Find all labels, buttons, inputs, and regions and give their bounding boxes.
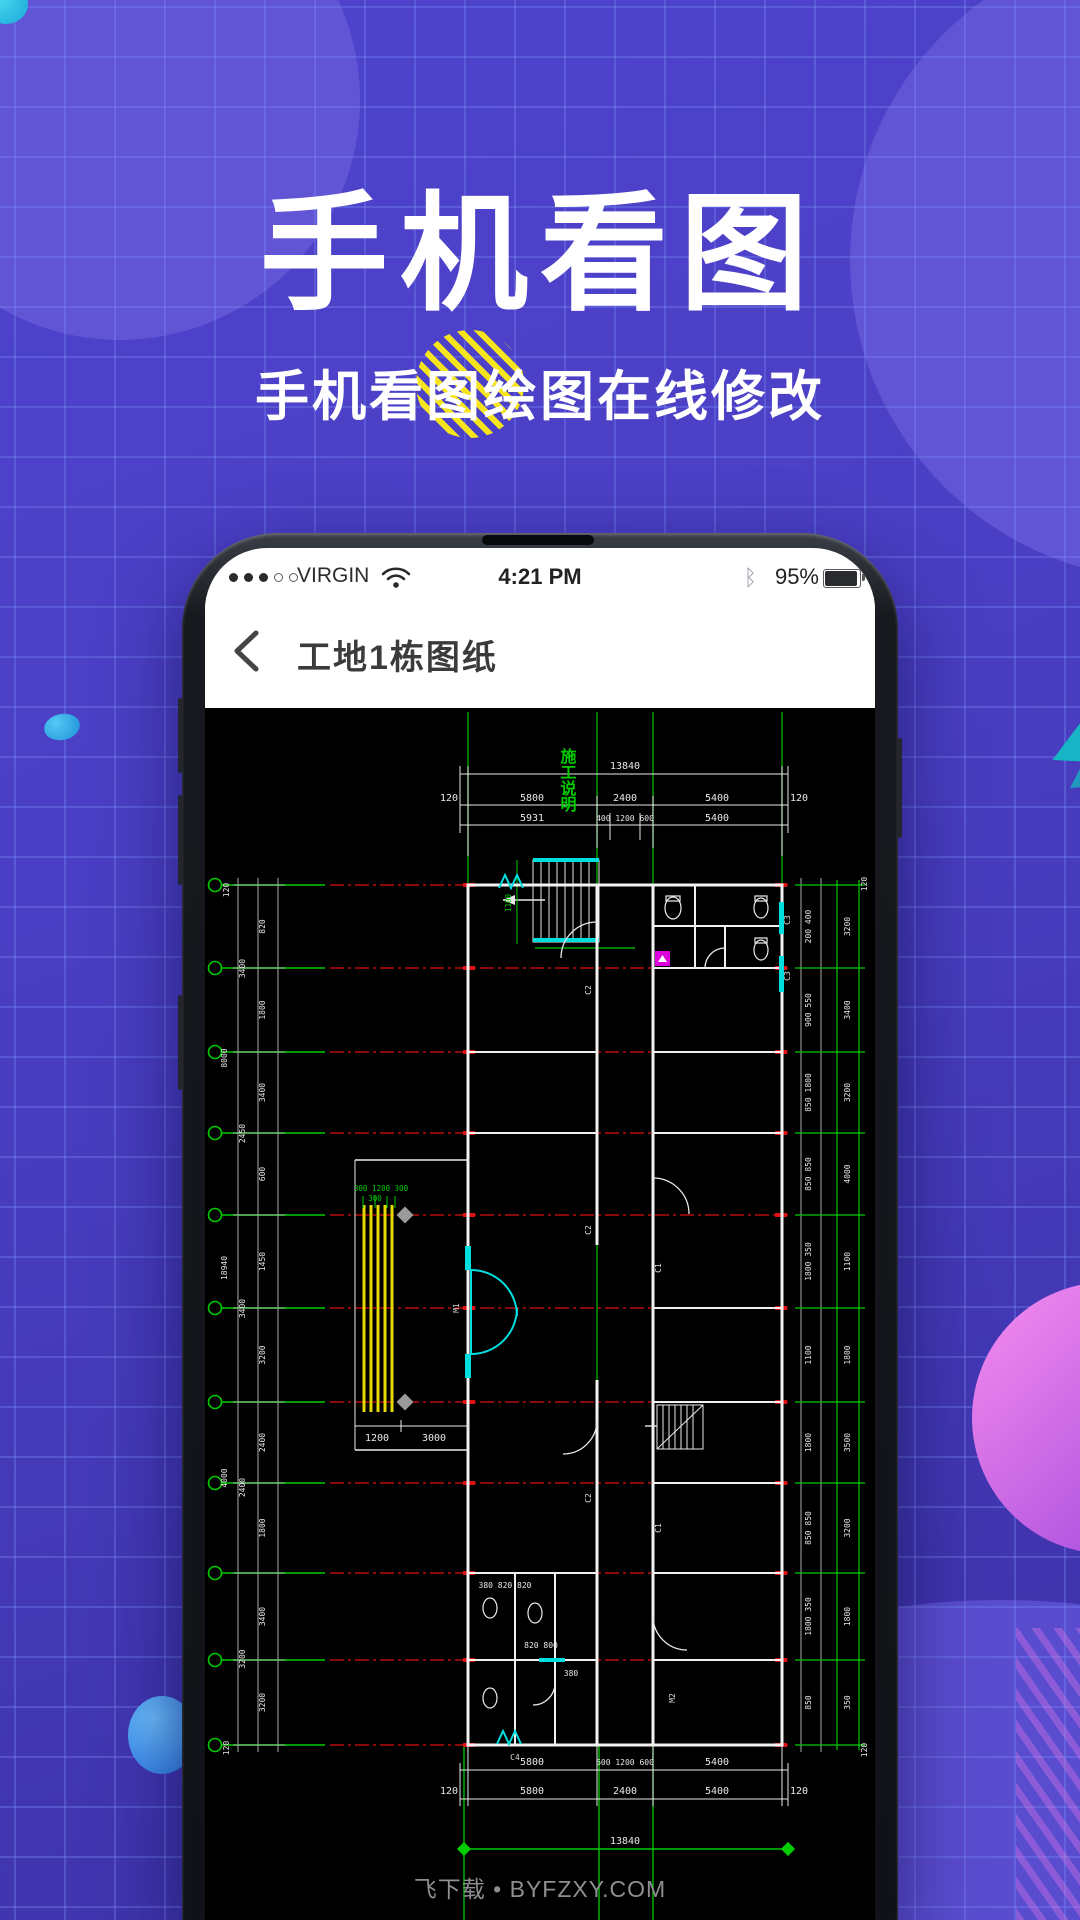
decor-triangle-teal xyxy=(1028,648,1080,798)
window-label: C2 xyxy=(584,985,593,995)
svg-text:3500: 3500 xyxy=(843,1433,852,1452)
dim-label: 120 xyxy=(790,793,808,804)
windows-cyan xyxy=(497,875,784,1744)
cad-green-note: 施工说明 xyxy=(558,747,577,813)
svg-text:4000: 4000 xyxy=(843,1164,852,1183)
dim-label: 380 820 820 xyxy=(479,1581,532,1590)
dim-label: 820 800 xyxy=(524,1641,558,1650)
svg-text:3400: 3400 xyxy=(238,959,247,978)
svg-text:350: 350 xyxy=(843,1695,852,1710)
phone-mockup: VIRGIN 4:21 PM ᛒ 95% 工地1栋图纸 xyxy=(182,533,898,1920)
dim-label: 1200 xyxy=(365,1433,389,1444)
room-partitions xyxy=(468,885,782,1745)
phone-screen: VIRGIN 4:21 PM ᛒ 95% 工地1栋图纸 xyxy=(205,548,875,1920)
window-label: C1 xyxy=(654,1523,663,1533)
door-arcs xyxy=(533,922,725,1705)
window-label: C3 xyxy=(783,971,792,981)
svg-text:1800: 1800 xyxy=(843,1345,852,1364)
svg-text:850 850: 850 850 xyxy=(804,1157,813,1191)
dim-label: 13840 xyxy=(610,761,640,772)
window-label: C2 xyxy=(584,1225,593,1235)
dim-label: 5931 xyxy=(520,813,544,824)
floorplan-drawing: 8201800340060014503200240018003400320034… xyxy=(205,708,875,1920)
dim-label: 5400 xyxy=(705,793,729,804)
svg-text:1800: 1800 xyxy=(258,1518,267,1537)
cad-canvas[interactable]: 8201800340060014503200240018003400320034… xyxy=(205,708,875,1920)
svg-text:3200: 3200 xyxy=(843,1518,852,1537)
door-label: M1 xyxy=(452,1303,461,1313)
window-label: C2 xyxy=(584,1493,593,1503)
dim-label: 5400 xyxy=(705,1757,729,1768)
dim-label: 600 1200 600 xyxy=(596,1758,654,1767)
dim-label: 120 xyxy=(860,1743,869,1758)
dim-label: 120 xyxy=(440,1786,458,1797)
svg-text:3400: 3400 xyxy=(258,1607,267,1626)
door-label: C4 xyxy=(510,1753,520,1762)
dim-label: 120 xyxy=(790,1786,808,1797)
dim-label: 120 xyxy=(222,1741,231,1756)
svg-text:3200: 3200 xyxy=(843,1083,852,1102)
status-bar: VIRGIN 4:21 PM ᛒ 95% xyxy=(205,562,875,596)
window-label: C3 xyxy=(783,915,792,925)
battery-percent-label: 95% xyxy=(775,564,819,590)
svg-text:3200: 3200 xyxy=(258,1693,267,1712)
dim-label: 300 1200 300 xyxy=(354,1184,409,1193)
bluetooth-icon: ᛒ xyxy=(744,565,757,591)
svg-text:1100: 1100 xyxy=(843,1252,852,1271)
hero-subtitle: 手机看图绘图在线修改 xyxy=(0,352,1080,431)
svg-text:1800: 1800 xyxy=(258,1000,267,1019)
svg-text:1800: 1800 xyxy=(843,1607,852,1626)
svg-text:850: 850 xyxy=(804,1695,813,1710)
phone-button-right xyxy=(897,738,902,838)
svg-text:3200: 3200 xyxy=(843,917,852,936)
dim-label: 2400 xyxy=(613,793,637,804)
svg-text:600: 600 xyxy=(258,1167,267,1182)
svg-text:1100: 1100 xyxy=(804,1345,813,1364)
dim-label: 5800 xyxy=(520,1786,544,1797)
window-label: C1 xyxy=(654,1263,663,1273)
dim-label: 5800 xyxy=(520,793,544,804)
svg-text:820: 820 xyxy=(258,919,267,934)
svg-text:4000: 4000 xyxy=(220,1468,229,1487)
dim-label: 380 xyxy=(564,1669,579,1678)
dim-label: 120 xyxy=(860,877,869,892)
svg-text:2400: 2400 xyxy=(258,1433,267,1452)
dim-label: 2400 xyxy=(613,1786,637,1797)
back-button[interactable] xyxy=(229,628,265,674)
svg-text:1800 350: 1800 350 xyxy=(804,1597,813,1636)
phone-button-left xyxy=(178,698,183,773)
svg-text:3200: 3200 xyxy=(258,1345,267,1364)
decor-stripes-bottomright xyxy=(1016,1628,1080,1920)
svg-text:1800 350: 1800 350 xyxy=(804,1242,813,1281)
promo-page: 手机看图 手机看图绘图在线修改 VIRGIN 4:21 PM xyxy=(0,0,1080,1920)
phone-speaker xyxy=(482,535,594,545)
svg-text:1450: 1450 xyxy=(258,1252,267,1271)
dim-label: 400 1200 600 xyxy=(596,814,654,823)
svg-text:2400: 2400 xyxy=(238,1478,247,1497)
svg-text:18940: 18940 xyxy=(220,1256,229,1280)
page-title: 工地1栋图纸 xyxy=(297,630,498,679)
door-label: M2 xyxy=(668,1693,677,1703)
main-door xyxy=(465,1246,517,1378)
svg-text:3400: 3400 xyxy=(238,1299,247,1318)
dim-label: 120 xyxy=(440,793,458,804)
dim-label: 3000 xyxy=(422,1433,446,1444)
dim-label: 13840 xyxy=(610,1836,640,1847)
watermark: 飞下载 • BYFZXY.COM xyxy=(205,1870,875,1904)
battery-icon xyxy=(823,569,861,588)
svg-text:900 550: 900 550 xyxy=(804,993,813,1027)
svg-text:3400: 3400 xyxy=(258,1083,267,1102)
dim-label: 5400 xyxy=(705,1786,729,1797)
phone-button-left xyxy=(178,995,183,1090)
porch: 300 1200 300 300 1200 3000 xyxy=(354,1160,468,1450)
svg-text:2450: 2450 xyxy=(238,1124,247,1143)
phone-button-left xyxy=(178,795,183,885)
svg-text:3200: 3200 xyxy=(238,1649,247,1668)
hero-title: 手机看图 xyxy=(0,150,1080,335)
svg-text:1800: 1800 xyxy=(804,1433,813,1452)
dim-label: 300 xyxy=(368,1194,382,1203)
dim-label: 5800 xyxy=(520,1757,544,1768)
svg-text:200 400: 200 400 xyxy=(804,909,813,943)
svg-text:3400: 3400 xyxy=(843,1000,852,1019)
svg-text:8000: 8000 xyxy=(220,1048,229,1067)
dim-label: 1100 xyxy=(504,893,513,912)
dim-label: 120 xyxy=(222,883,231,898)
svg-text:850 1800: 850 1800 xyxy=(804,1073,813,1112)
nav-bar: 工地1栋图纸 xyxy=(205,596,875,708)
svg-text:850 850: 850 850 xyxy=(804,1511,813,1545)
dim-label: 5400 xyxy=(705,813,729,824)
